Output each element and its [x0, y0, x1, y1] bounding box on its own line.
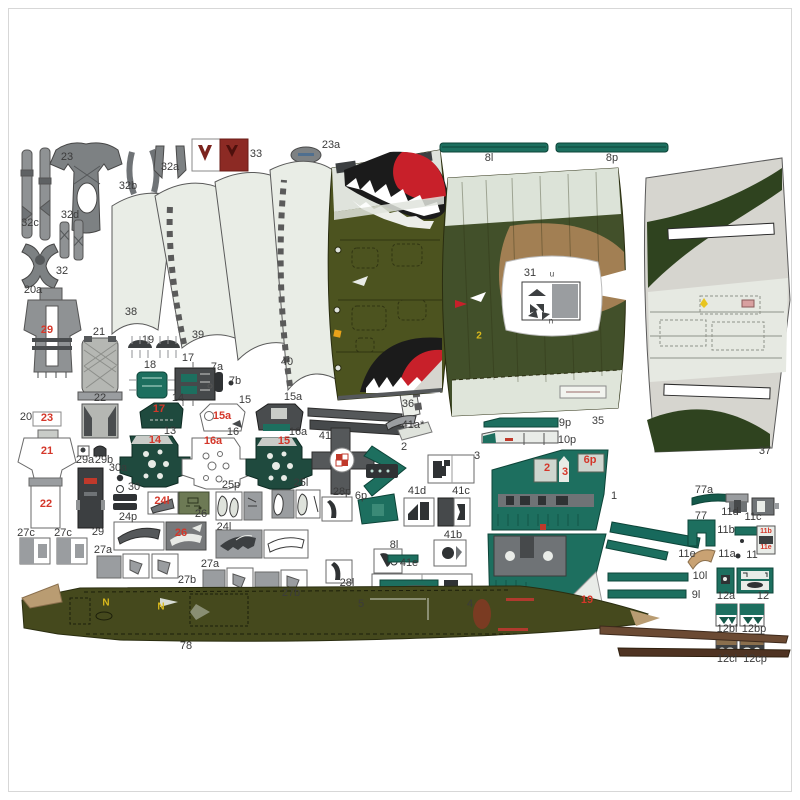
part-label-25p-46: 25p [222, 480, 240, 491]
part-label-2-103: 2 [476, 332, 482, 342]
part-label-1-45: 1 [611, 491, 617, 502]
part-label-41-39: 41 [319, 431, 331, 442]
part-label-19-16: 19 [142, 335, 154, 346]
part-label-19-98: 19 [581, 595, 593, 606]
part-25p-box [216, 492, 262, 520]
part-label-27b-54: 27b [282, 588, 300, 599]
part-label-32-7: 32 [56, 266, 68, 277]
part-label-20a-10: 20a [24, 285, 42, 296]
part-label-N-102: N [157, 603, 164, 613]
part-29-black [76, 468, 105, 528]
part-label-26-94: 26 [175, 528, 187, 539]
part-label-26-48: 26 [195, 509, 207, 520]
part-label-78-67: 78 [180, 641, 192, 652]
part-label-12cl-80: 12cl [717, 654, 737, 665]
part-24l-assembly [216, 530, 308, 558]
part-9p-strip [484, 418, 558, 427]
part-24p-assembly [114, 522, 206, 550]
part-18-block [129, 372, 175, 398]
part-label-16a-91: 16a [204, 436, 222, 447]
part-33-box [192, 139, 248, 171]
part-label-12bp-79: 12bp [742, 624, 766, 635]
part-label-41a-40: 41a* [402, 420, 425, 431]
part-label-N-101: N [102, 599, 109, 609]
part-label-16-32: 16 [227, 427, 239, 438]
part-label-27a-51: 27a [94, 545, 112, 556]
part-label-28l-63: 28l [340, 578, 355, 589]
part-8l-strip [440, 143, 548, 152]
part-label-22-87: 22 [40, 499, 52, 510]
part-label-n-28: n [549, 318, 553, 326]
part-label-8p-9: 8p [606, 153, 618, 164]
part-label-14-90: 14 [149, 435, 161, 446]
part-11a-dot [736, 554, 741, 559]
part-27c-boxes [20, 538, 87, 564]
part-label-11a-73: 11a [718, 549, 736, 560]
part-2-chevron [364, 446, 406, 496]
part-label-77a-68: 77a [695, 485, 713, 496]
part-41d-box [404, 498, 434, 526]
part-label-3-42: 3 [474, 451, 480, 462]
part-label-21-86: 21 [41, 446, 53, 457]
part-label-31-26: 31 [524, 268, 536, 279]
part-32-xframe [22, 244, 58, 288]
part-label-77-69: 77 [695, 511, 707, 522]
part-label-11c-71: 11c [745, 512, 762, 523]
part-label-21-14: 21 [93, 327, 105, 338]
parts-artwork [0, 0, 800, 800]
part-label-15a-89: 15a [213, 411, 231, 422]
part-label-12cp-81: 12cp [743, 654, 767, 665]
part-label-11e-75: 11e [678, 549, 696, 560]
part-label-11-74: 11 [746, 550, 757, 561]
part-label-23-0: 23 [61, 152, 73, 163]
part-label-40-13: 40 [281, 357, 293, 368]
part-label-17-88: 17 [153, 404, 165, 415]
part-label-20-30: 20 [20, 412, 32, 423]
part-label-23-85: 23 [41, 413, 53, 424]
part-label-11b-72: 11b [717, 525, 735, 536]
part-label-11b-99: 11b [760, 528, 772, 535]
part-label-16a-33: 16a [289, 427, 307, 438]
part-78-spine [22, 584, 660, 641]
part-label-2-95: 2 [544, 463, 550, 474]
part-label-8l-8: 8l [485, 153, 494, 164]
part-label-29-84: 29 [41, 325, 53, 336]
part-22-seat-back [82, 404, 118, 438]
part-37-aft-fuselage [644, 158, 790, 452]
part-label-13-31: 13 [164, 426, 176, 437]
part-label-41d-59: 41d [408, 486, 426, 497]
part-label-41c-60: 41c [452, 486, 470, 497]
part-36-shark-fuselage [328, 150, 449, 400]
part-3-box [428, 455, 474, 483]
part-label-10l-82: 10l [693, 571, 708, 582]
part-10p-strip [482, 431, 558, 445]
part-label-10p-44: 10p [558, 435, 576, 446]
part-label-18-17: 18 [144, 360, 156, 371]
part-label-14-21: 14 [172, 393, 184, 404]
part-label-12-77: 12 [757, 591, 769, 602]
part-label-11d-70: 11d [721, 507, 739, 518]
part-label-12a-76: 12a [717, 591, 735, 602]
part-label-12bl-78: 12bl [717, 624, 738, 635]
part-label-17-18: 17 [182, 353, 194, 364]
part-label-30-37: 30 [128, 482, 140, 493]
part-31-mirror-panel [522, 282, 580, 320]
part-41c-box [438, 498, 470, 526]
part-10l-strip [608, 573, 688, 581]
part-label-30a-36: 30a [109, 463, 127, 474]
part-label-41b-61: 41b [444, 530, 462, 541]
part-label-4-65: 4 [467, 599, 473, 610]
part-label-6p-97: 6p [584, 455, 597, 466]
part-label-9p-43: 9p [559, 418, 571, 429]
part-23a-pod [291, 147, 321, 163]
part-77-u [688, 520, 715, 546]
part-label-39-12: 39 [192, 330, 204, 341]
part-label-38-11: 38 [125, 307, 137, 318]
part-25l-box [272, 490, 320, 518]
part-label-15-92: 15 [278, 436, 290, 447]
part-label-36-24: 36 [402, 399, 414, 410]
part-label-24l-93: 24l [154, 496, 169, 507]
part-label-6p-58: 6p [355, 491, 367, 502]
part-label-33-4: 33 [250, 149, 262, 160]
part-label-32b-2: 32b [119, 181, 137, 192]
part-label-29a-34: 29a [76, 455, 94, 466]
part-label-25l-47: 25l [294, 478, 309, 489]
part-11b [735, 527, 758, 543]
part-8p-strip [556, 143, 668, 152]
part-label-23a-5: 23a [322, 140, 340, 151]
part-21-cushion [78, 336, 122, 400]
part-32d-straps [60, 220, 83, 260]
part-label-28p-57: 28p [333, 487, 351, 498]
part-label-15a-23: 15a [284, 392, 302, 403]
part-9l-strip [608, 590, 686, 598]
part-41b-box [434, 540, 466, 566]
part-label-24l-50: 24l [217, 522, 232, 533]
part-label-11e-100: 11e [760, 544, 771, 551]
part-label-27c-56: 27c [54, 528, 72, 539]
part-label-8l-62: 8l [390, 540, 399, 551]
part-label-32d-6: 32d [61, 210, 79, 221]
part-label-5-64: 5 [358, 599, 364, 610]
part-label-35-25: 35 [592, 416, 604, 427]
part-35-camo-fuselage [442, 168, 626, 416]
part-label-29-38: 29 [92, 527, 104, 538]
part-28p-box [322, 497, 352, 521]
part-label-27c-55: 27c [17, 528, 35, 539]
part-27-boxes-set1 [97, 554, 178, 578]
part-label-7a-19: 7a [211, 362, 223, 373]
part-label-3-96: 3 [562, 467, 568, 478]
part-label-27a-53: 27a [201, 559, 219, 570]
part-label-37-29: 37 [759, 446, 771, 457]
parts-sheet: 2332c32b32a3323a32d328l8p20a383940212219… [0, 0, 800, 800]
part-label-41e-66: 41e [400, 558, 418, 569]
part-label-22-15: 22 [94, 393, 106, 404]
part-label-32c-1: 32c [21, 218, 39, 229]
part-label-u-27: u [550, 271, 554, 279]
part-label-9l-83: 9l [692, 590, 701, 601]
part-label-7b-20: 7b [229, 376, 241, 387]
part-label-24p-49: 24p [119, 512, 137, 523]
part-label-2-41: 2 [401, 442, 407, 453]
part-label-32a-3: 32a [161, 162, 179, 173]
part-label-15-22: 15 [239, 395, 251, 406]
part-label-27b-52: 27b [178, 575, 196, 586]
